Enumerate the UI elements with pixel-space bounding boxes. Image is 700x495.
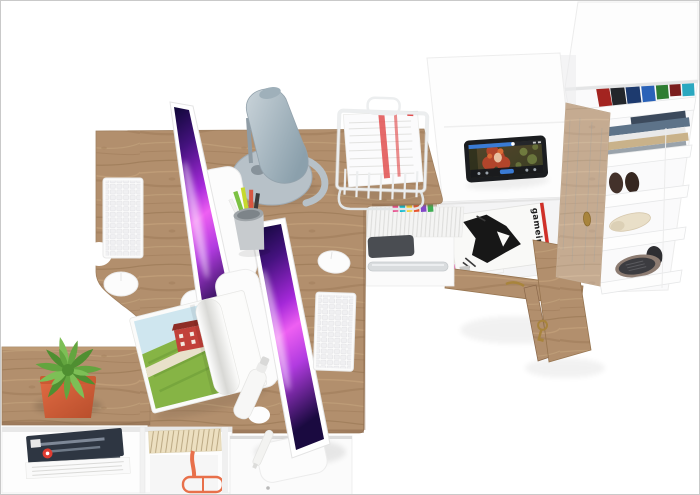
shelf-divider [140, 427, 145, 493]
drawer-knob [266, 486, 270, 490]
bottom-left-bookshelf [2, 427, 232, 493]
keyboard-1 [103, 178, 143, 258]
keyboard-2 [313, 292, 356, 371]
drawer-rail [368, 262, 448, 271]
mouse-1 [104, 272, 138, 296]
shelf-end-panel [222, 427, 228, 493]
wardrobe-door-open [556, 103, 610, 286]
pc-unit [368, 235, 415, 258]
book-pages [149, 429, 222, 453]
wardrobe-top-panel [565, 2, 698, 88]
shadow [525, 358, 605, 378]
tablet-screen [468, 140, 543, 178]
tablet [463, 135, 550, 192]
workstation-render: gameinformer [0, 0, 700, 495]
